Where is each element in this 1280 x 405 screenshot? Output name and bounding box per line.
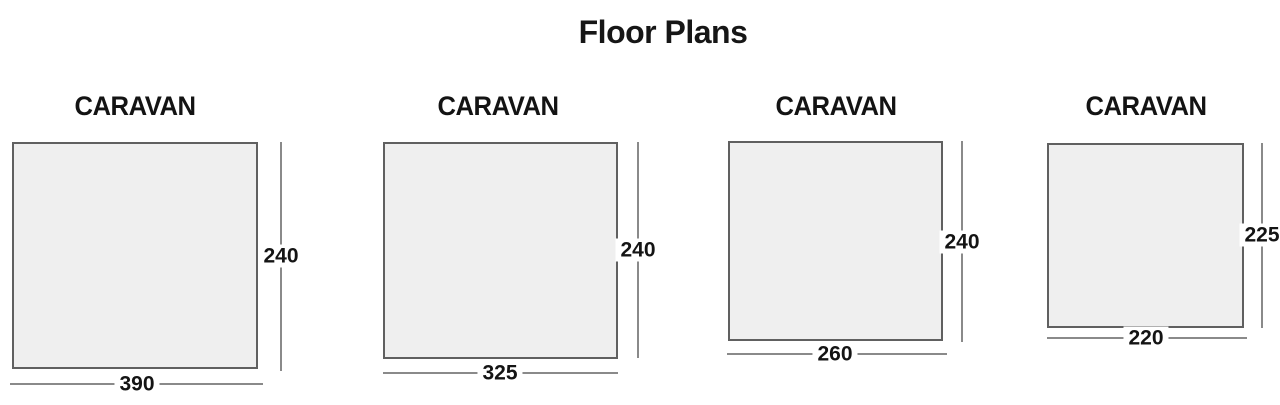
page-title: Floor Plans: [579, 16, 748, 48]
floor-rect: [1047, 143, 1244, 328]
height-dimension-label: 225: [1239, 224, 1280, 247]
width-dimension-label: 260: [812, 343, 857, 366]
height-dimension-label: 240: [258, 245, 303, 268]
width-dimension-label: 325: [477, 362, 522, 385]
height-dimension-label: 240: [615, 239, 660, 262]
caravan-label: CARAVAN: [437, 93, 558, 120]
caravan-label: CARAVAN: [1085, 93, 1206, 120]
floor-plans-canvas: Floor Plans CARAVAN 240 390 CARAVAN 240 …: [0, 0, 1280, 405]
floor-rect: [728, 141, 943, 341]
caravan-label: CARAVAN: [74, 93, 195, 120]
width-dimension-label: 220: [1123, 327, 1168, 350]
height-dimension-label: 240: [939, 231, 984, 254]
floor-rect: [12, 142, 258, 369]
floor-rect: [383, 142, 618, 359]
caravan-label: CARAVAN: [775, 93, 896, 120]
width-dimension-label: 390: [114, 373, 159, 396]
